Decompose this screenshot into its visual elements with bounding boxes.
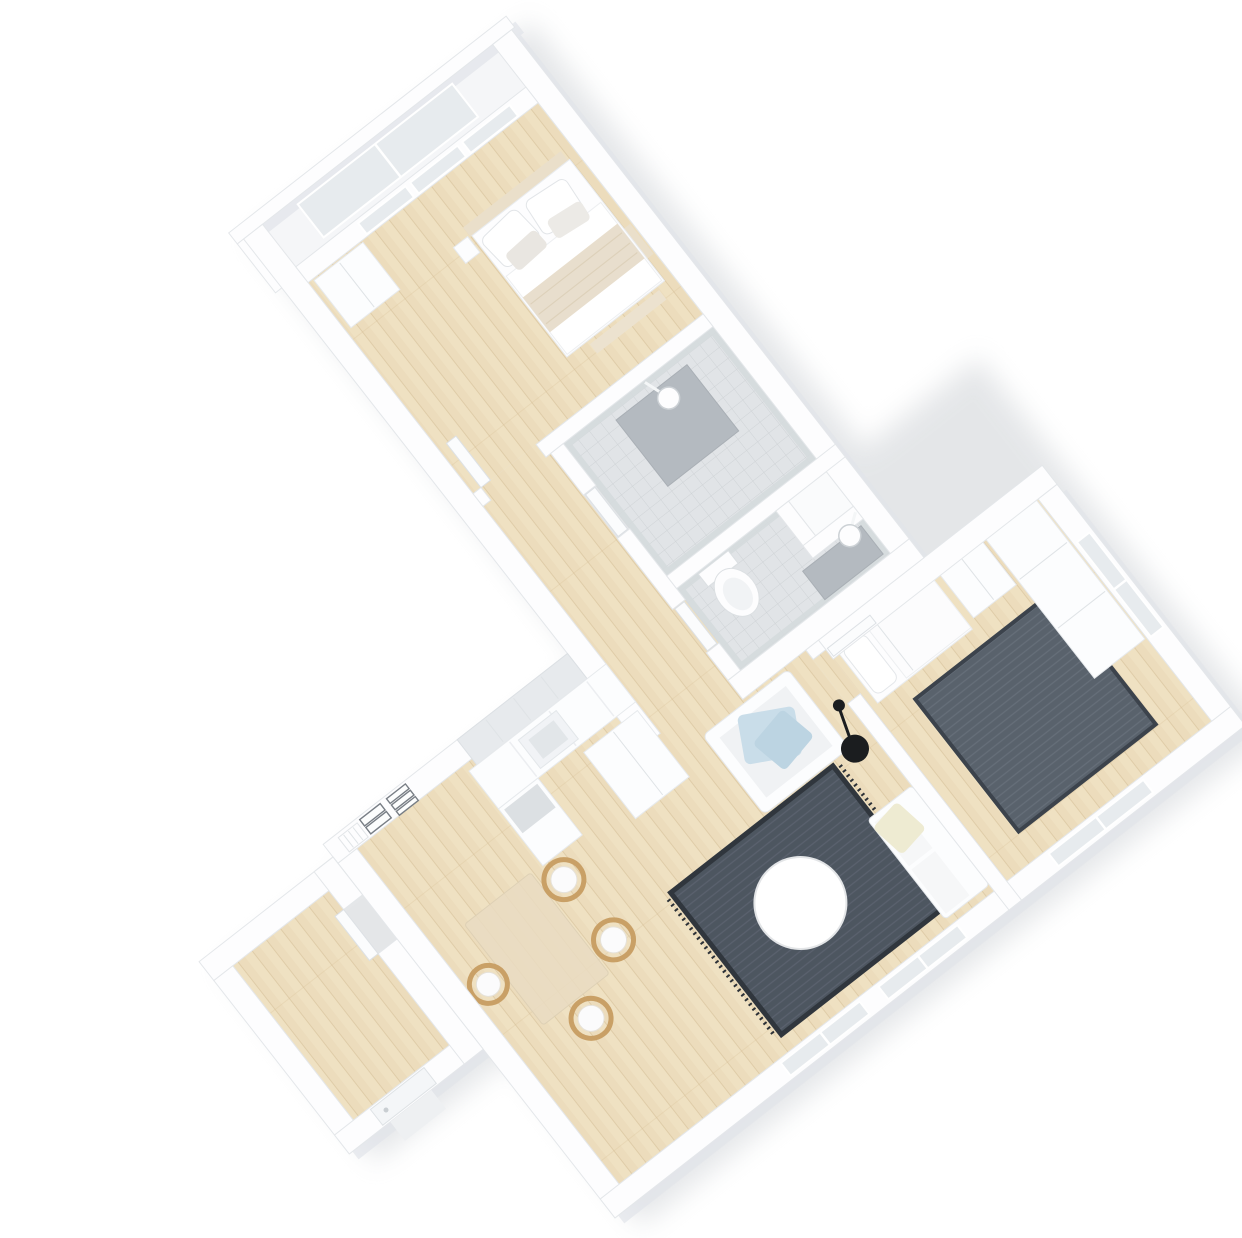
floor-plan-page	[0, 0, 1242, 1238]
floor-plan-render	[0, 0, 1242, 1238]
